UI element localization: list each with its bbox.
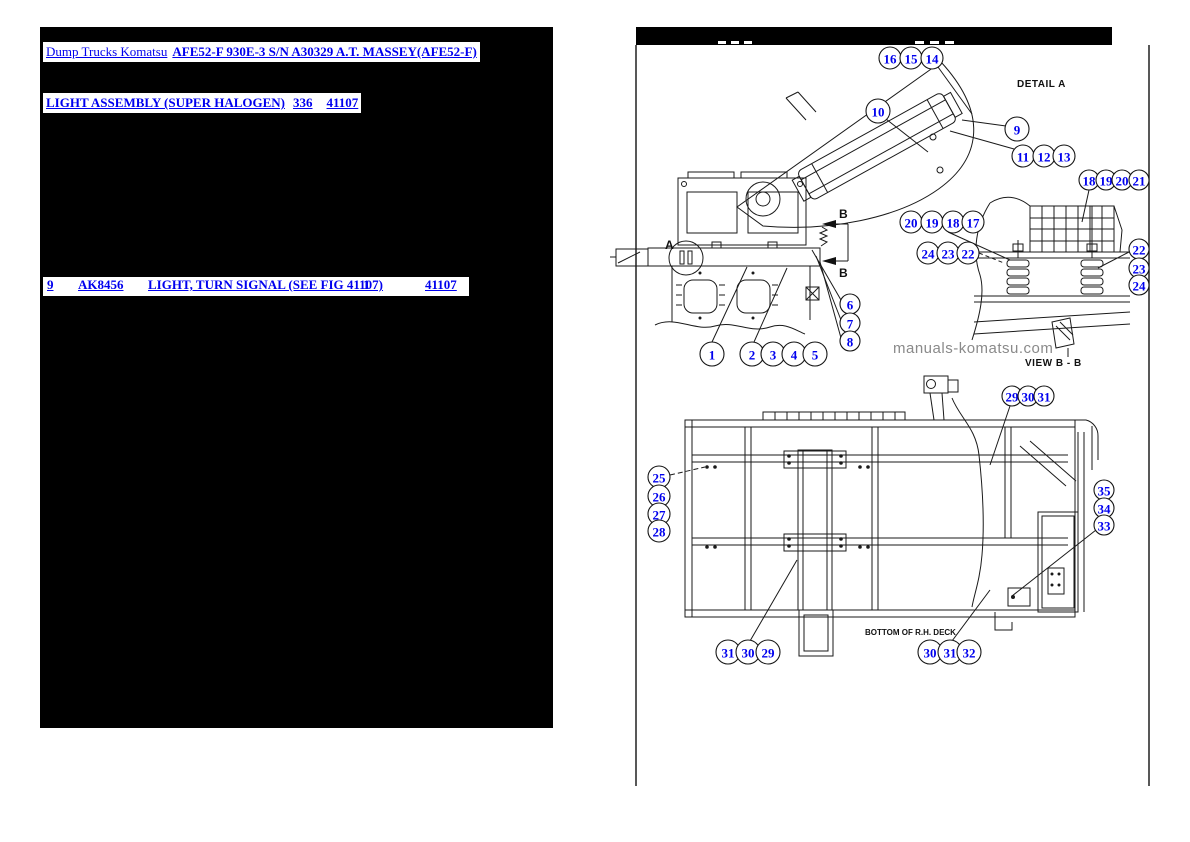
callout-4[interactable]: 4 [782, 342, 806, 366]
callout-18[interactable]: 18 [942, 211, 964, 233]
svg-text:21: 21 [1133, 174, 1146, 189]
svg-text:23: 23 [942, 247, 956, 262]
svg-text:15: 15 [905, 52, 919, 67]
svg-text:30: 30 [742, 646, 755, 661]
svg-text:5: 5 [812, 348, 819, 363]
svg-text:22: 22 [962, 247, 975, 262]
svg-text:13: 13 [1058, 150, 1072, 165]
callout-29[interactable]: 29 [756, 640, 780, 664]
svg-text:2: 2 [749, 348, 756, 363]
svg-text:24: 24 [922, 247, 936, 262]
svg-text:22: 22 [1133, 243, 1146, 258]
svg-text:14: 14 [926, 52, 940, 67]
diagram-top-bar [636, 27, 1112, 45]
svg-text:16: 16 [884, 52, 898, 67]
svg-text:31: 31 [944, 646, 957, 661]
callout-8[interactable]: 8 [840, 331, 860, 351]
svg-text:28: 28 [653, 525, 667, 540]
callout-22[interactable]: 22 [957, 242, 979, 264]
callout-6[interactable]: 6 [840, 294, 860, 314]
svg-text:23: 23 [1133, 262, 1147, 277]
svg-text:10: 10 [872, 105, 885, 120]
svg-text:9: 9 [1014, 123, 1021, 138]
view-bb-label: VIEW B - B [1025, 358, 1082, 369]
svg-text:30: 30 [1022, 390, 1035, 405]
callout-11[interactable]: 11 [1012, 145, 1034, 167]
callout-28[interactable]: 28 [648, 520, 670, 542]
callout-20[interactable]: 20 [900, 211, 922, 233]
svg-text:31: 31 [1038, 390, 1051, 405]
callout-23[interactable]: 23 [937, 242, 959, 264]
callout-5[interactable]: 5 [803, 342, 827, 366]
svg-text:34: 34 [1098, 502, 1112, 517]
callout-24[interactable]: 24 [917, 242, 939, 264]
callout-15[interactable]: 15 [900, 47, 922, 69]
svg-text:6: 6 [847, 298, 854, 313]
callout-9[interactable]: 9 [1005, 117, 1029, 141]
svg-text:25: 25 [653, 471, 667, 486]
callout-33[interactable]: 33 [1094, 515, 1114, 535]
svg-text:29: 29 [1006, 390, 1020, 405]
svg-text:26: 26 [653, 490, 667, 505]
svg-text:31: 31 [722, 646, 735, 661]
callout-13[interactable]: 13 [1053, 145, 1075, 167]
svg-text:35: 35 [1098, 484, 1112, 499]
view-bb-drawing [972, 197, 1130, 357]
cab-front-view-drawing [610, 172, 848, 334]
callout-14[interactable]: 14 [921, 47, 943, 69]
callout-19[interactable]: 19 [921, 211, 943, 233]
detail-a-drawing [737, 62, 974, 227]
callout-16[interactable]: 16 [879, 47, 901, 69]
callout-17[interactable]: 17 [962, 211, 984, 233]
section-marker-b-bottom: B [839, 266, 848, 280]
callout-21[interactable]: 21 [1129, 170, 1149, 190]
detail-a-label: DETAIL A [1017, 79, 1066, 90]
svg-text:33: 33 [1098, 519, 1112, 534]
section-marker-b-top: B [839, 207, 848, 221]
svg-text:20: 20 [1116, 174, 1129, 189]
deck-bottom-drawing [685, 376, 1098, 656]
callout-22[interactable]: 22 [1129, 239, 1149, 259]
page: Dump Trucks KomatsuAFE52-F 930E-3 S/N A3… [0, 0, 1190, 842]
callout-24[interactable]: 24 [1129, 275, 1149, 295]
callout-32[interactable]: 32 [957, 640, 981, 664]
bottom-deck-label: BOTTOM OF R.H. DECK [865, 628, 956, 637]
svg-text:12: 12 [1038, 150, 1051, 165]
callout-12[interactable]: 12 [1033, 145, 1055, 167]
svg-text:32: 32 [963, 646, 976, 661]
callout-10[interactable]: 10 [866, 99, 890, 123]
callout-3[interactable]: 3 [761, 342, 785, 366]
svg-text:17: 17 [967, 216, 981, 231]
svg-text:19: 19 [926, 216, 940, 231]
svg-text:19: 19 [1100, 174, 1114, 189]
svg-text:4: 4 [791, 348, 798, 363]
svg-text:20: 20 [905, 216, 918, 231]
callout-1[interactable]: 1 [700, 342, 724, 366]
diagram-panel: DETAIL A manuals-komatsu.com VIEW B - B … [0, 0, 1190, 842]
svg-text:30: 30 [924, 646, 937, 661]
section-marker-a: A [665, 238, 674, 252]
svg-text:1: 1 [709, 348, 716, 363]
callout-2[interactable]: 2 [740, 342, 764, 366]
callout-7[interactable]: 7 [840, 313, 860, 333]
svg-text:11: 11 [1017, 150, 1029, 165]
svg-text:3: 3 [770, 348, 777, 363]
watermark-text: manuals-komatsu.com [893, 340, 1053, 357]
svg-text:24: 24 [1133, 279, 1147, 294]
svg-text:18: 18 [947, 216, 961, 231]
svg-text:29: 29 [762, 646, 776, 661]
callout-35[interactable]: 35 [1094, 480, 1114, 500]
svg-text:18: 18 [1083, 174, 1097, 189]
svg-text:7: 7 [847, 317, 854, 332]
svg-text:8: 8 [847, 335, 854, 350]
callout-31[interactable]: 31 [1034, 386, 1054, 406]
